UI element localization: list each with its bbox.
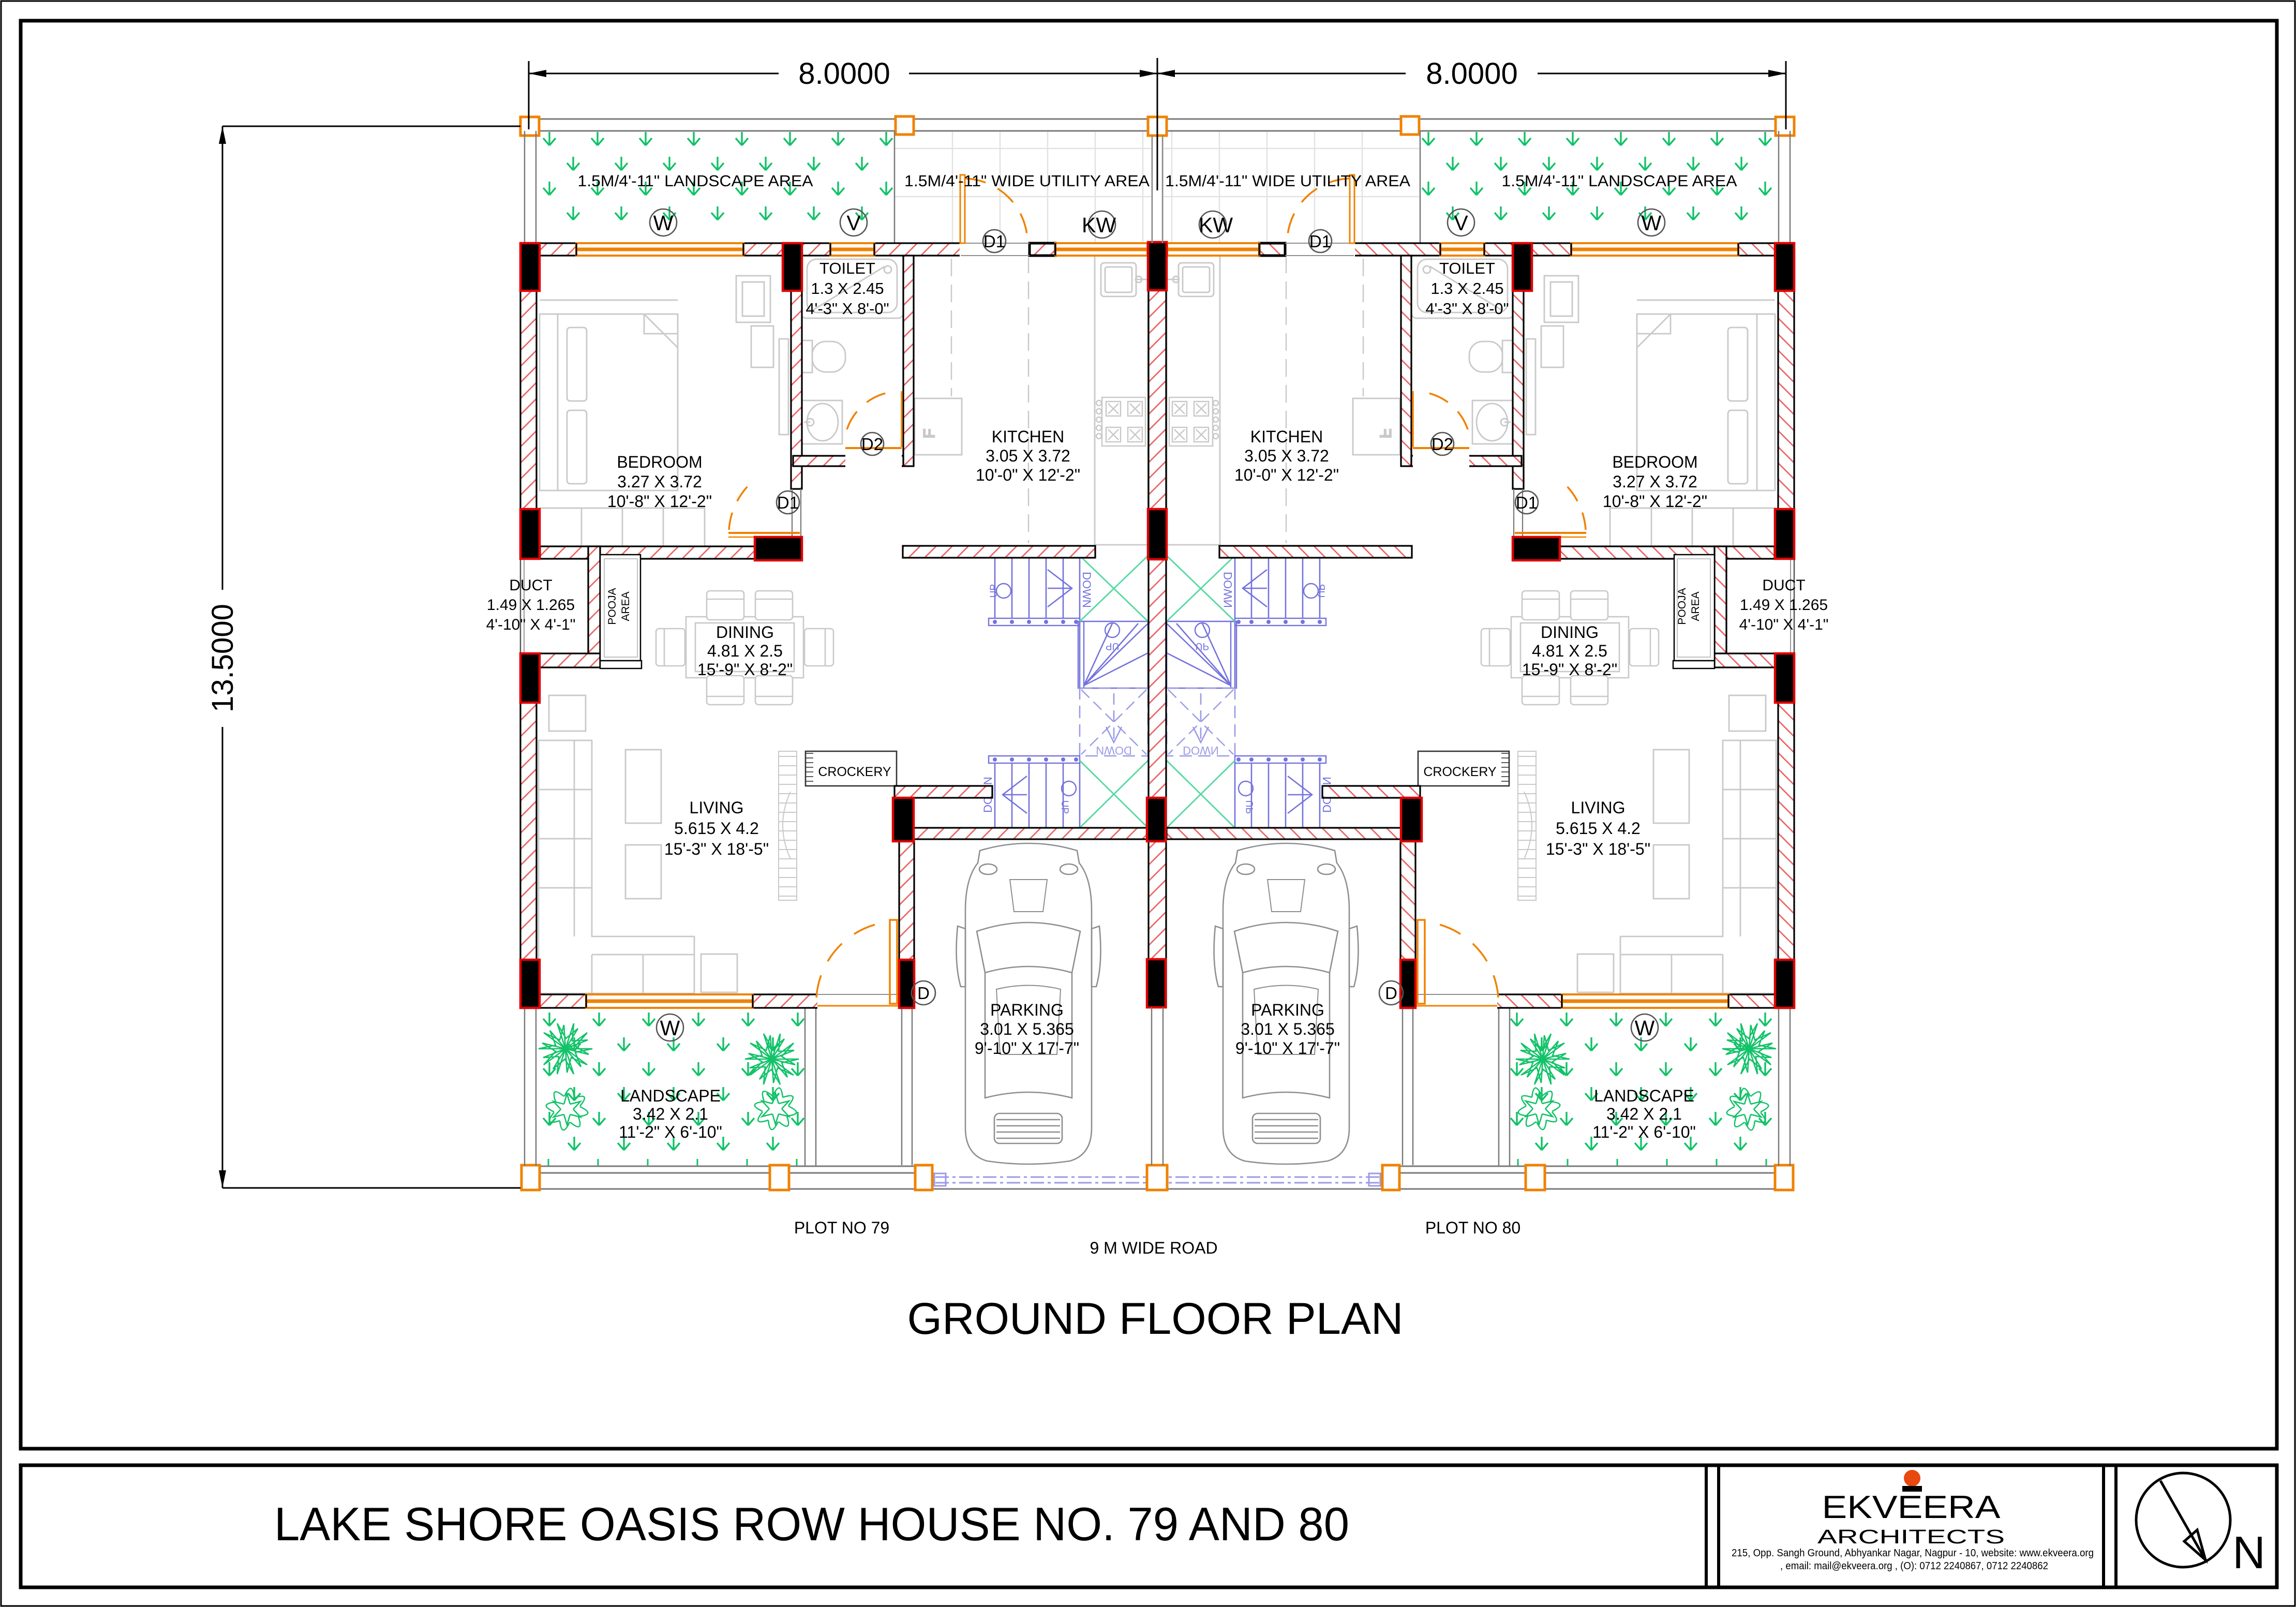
svg-text:10'-8" X 12'-2": 10'-8" X 12'-2": [1603, 492, 1707, 511]
svg-text:10'-0" X 12'-2": 10'-0" X 12'-2": [976, 466, 1080, 484]
svg-text:AREA: AREA: [620, 591, 632, 621]
svg-text:PLOT NO 79: PLOT NO 79: [794, 1218, 889, 1237]
svg-text:PARKING: PARKING: [1251, 1001, 1324, 1019]
svg-text:3.42 X 2.1: 3.42 X 2.1: [633, 1105, 708, 1123]
svg-text:DINING: DINING: [716, 623, 774, 642]
svg-text:CROCKERY: CROCKERY: [1423, 765, 1497, 779]
svg-text:UP: UP: [989, 584, 1000, 598]
svg-text:D1: D1: [983, 232, 1005, 251]
svg-text:4.81 X 2.5: 4.81 X 2.5: [1532, 642, 1607, 660]
svg-text:3.05 X 3.72: 3.05 X 3.72: [986, 447, 1070, 465]
svg-text:CROCKERY: CROCKERY: [818, 765, 891, 779]
svg-text:LANDSCAPE: LANDSCAPE: [620, 1087, 721, 1105]
svg-text:W: W: [660, 1016, 680, 1040]
svg-text:UP: UP: [1106, 641, 1119, 651]
svg-text:TOILET: TOILET: [1439, 259, 1495, 277]
svg-text:KITCHEN: KITCHEN: [992, 427, 1064, 446]
svg-text:D1: D1: [1516, 493, 1538, 512]
svg-text:15'-3" X 18'-5": 15'-3" X 18'-5": [1546, 840, 1650, 858]
svg-text:4'-10" X 4'-1": 4'-10" X 4'-1": [1739, 616, 1829, 633]
svg-text:5.615 X 4.2: 5.615 X 4.2: [1556, 819, 1641, 838]
svg-text:AREA: AREA: [1690, 591, 1702, 621]
svg-text:POOJA: POOJA: [606, 588, 618, 624]
svg-text:ARCHITECTS: ARCHITECTS: [1817, 1526, 2005, 1548]
svg-text:9'-10" X 17'-7": 9'-10" X 17'-7": [1235, 1039, 1340, 1058]
svg-text:TOILET: TOILET: [819, 259, 875, 277]
svg-text:1.3 X 2.45: 1.3 X 2.45: [811, 279, 884, 297]
svg-text:N: N: [2232, 1527, 2265, 1578]
svg-text:4'-3" X 8'-0": 4'-3" X 8'-0": [1425, 300, 1509, 318]
svg-text:11'-2" X 6'-10": 11'-2" X 6'-10": [619, 1123, 722, 1141]
svg-text:BEDROOM: BEDROOM: [1612, 453, 1697, 471]
svg-text:1.5M/4'-11" WIDE UTILITY AREA: 1.5M/4'-11" WIDE UTILITY AREA: [904, 172, 1150, 190]
svg-text:1.49 X 1.265: 1.49 X 1.265: [1740, 597, 1828, 614]
svg-text:LIVING: LIVING: [1571, 798, 1626, 817]
svg-text:1.3 X 2.45: 1.3 X 2.45: [1430, 279, 1503, 297]
svg-text:PARKING: PARKING: [990, 1001, 1064, 1019]
svg-text:DINING: DINING: [1541, 623, 1599, 642]
svg-text:D2: D2: [1432, 435, 1453, 454]
svg-text:DOWN: DOWN: [1080, 572, 1093, 608]
svg-text:D2: D2: [861, 435, 883, 454]
svg-text:215, Opp. Sangh Ground, Abhyan: 215, Opp. Sangh Ground, Abhyankar Nagar,…: [1732, 1548, 2094, 1559]
svg-text:DOWN: DOWN: [1096, 744, 1132, 757]
svg-text:DUCT: DUCT: [1762, 577, 1805, 594]
svg-text:W: W: [1642, 211, 1662, 235]
svg-text:KW: KW: [1199, 213, 1233, 237]
svg-text:POOJA: POOJA: [1676, 588, 1688, 624]
svg-text:5.615 X 4.2: 5.615 X 4.2: [674, 819, 759, 838]
svg-text:8.0000: 8.0000: [1426, 57, 1517, 91]
svg-text:UP: UP: [1059, 800, 1070, 814]
svg-text:10'-8" X 12'-2": 10'-8" X 12'-2": [607, 492, 712, 511]
svg-text:11'-2" X 6'-10": 11'-2" X 6'-10": [1592, 1123, 1696, 1141]
svg-text:, email: mail@ekveera.org , (O: , email: mail@ekveera.org , (O): 0712 22…: [1780, 1560, 2048, 1572]
svg-text:9'-10" X 17'-7": 9'-10" X 17'-7": [975, 1039, 1079, 1058]
svg-text:8.0000: 8.0000: [798, 57, 890, 91]
svg-text:1.5M/4'-11" LANDSCAPE AREA: 1.5M/4'-11" LANDSCAPE AREA: [578, 172, 813, 190]
svg-text:PLOT NO 80: PLOT NO 80: [1425, 1218, 1520, 1237]
svg-text:V: V: [846, 211, 861, 235]
svg-text:D1: D1: [777, 493, 799, 512]
svg-text:LAKE SHORE OASIS ROW HOUSE NO.: LAKE SHORE OASIS ROW HOUSE NO. 79 AND 80: [274, 1498, 1349, 1551]
svg-text:GROUND FLOOR PLAN: GROUND FLOOR PLAN: [907, 1294, 1404, 1344]
svg-text:F: F: [921, 429, 938, 438]
svg-text:13.5000: 13.5000: [206, 604, 240, 712]
svg-text:LIVING: LIVING: [690, 798, 744, 817]
svg-text:LANDSCAPE: LANDSCAPE: [1594, 1087, 1694, 1105]
svg-text:15'-9" X 8'-2": 15'-9" X 8'-2": [697, 660, 793, 679]
svg-text:D1: D1: [1309, 232, 1331, 251]
svg-text:3.01 X 5.365: 3.01 X 5.365: [980, 1020, 1074, 1038]
svg-text:DUCT: DUCT: [509, 577, 552, 594]
svg-text:D: D: [1385, 984, 1397, 1003]
svg-text:3.27 X 3.72: 3.27 X 3.72: [617, 472, 702, 491]
svg-text:4'-3" X 8'-0": 4'-3" X 8'-0": [806, 300, 889, 318]
svg-text:3.27 X 3.72: 3.27 X 3.72: [1613, 472, 1697, 491]
svg-text:V: V: [1454, 211, 1468, 235]
svg-text:W: W: [653, 211, 674, 235]
svg-text:BEDROOM: BEDROOM: [617, 453, 702, 471]
svg-text:4'-10" X 4'-1": 4'-10" X 4'-1": [486, 616, 576, 633]
svg-text:1.5M/4'-11" WIDE UTILITY AREA: 1.5M/4'-11" WIDE UTILITY AREA: [1165, 172, 1410, 190]
svg-text:3.01 X 5.365: 3.01 X 5.365: [1241, 1020, 1334, 1038]
svg-text:1.49 X 1.265: 1.49 X 1.265: [487, 597, 575, 614]
svg-text:4.81 X 2.5: 4.81 X 2.5: [707, 642, 783, 660]
svg-text:10'-0" X 12'-2": 10'-0" X 12'-2": [1234, 466, 1339, 484]
svg-text:KITCHEN: KITCHEN: [1250, 427, 1323, 446]
svg-text:3.42 X 2.1: 3.42 X 2.1: [1606, 1105, 1682, 1123]
svg-text:1.5M/4'-11" LANDSCAPE AREA: 1.5M/4'-11" LANDSCAPE AREA: [1502, 172, 1737, 190]
svg-text:15'-3" X 18'-5": 15'-3" X 18'-5": [664, 840, 769, 858]
svg-text:D: D: [917, 984, 930, 1003]
svg-text:3.05 X 3.72: 3.05 X 3.72: [1244, 447, 1329, 465]
svg-text:W: W: [1635, 1016, 1655, 1040]
svg-text:15'-9" X 8'-2": 15'-9" X 8'-2": [1522, 660, 1617, 679]
svg-text:KW: KW: [1082, 213, 1116, 237]
svg-text:9 M WIDE ROAD: 9 M WIDE ROAD: [1090, 1239, 1217, 1257]
svg-text:EKVEERA: EKVEERA: [1822, 1490, 2001, 1525]
